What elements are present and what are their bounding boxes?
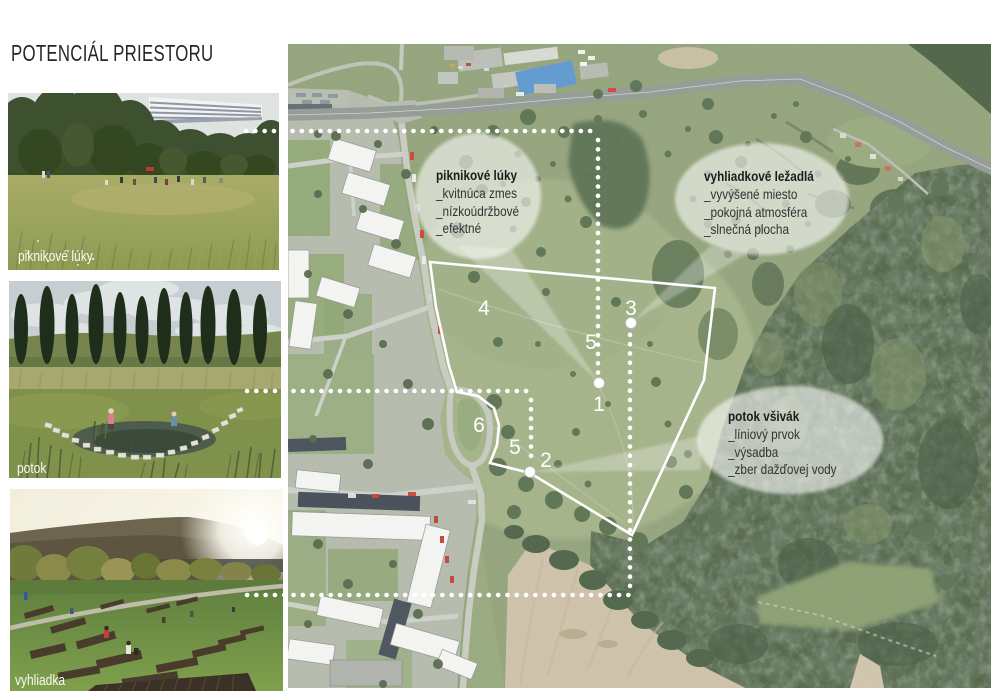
svg-text:4: 4 <box>478 297 490 320</box>
svg-text:5: 5 <box>509 436 521 459</box>
svg-text:6: 6 <box>473 414 485 437</box>
svg-text:3: 3 <box>625 297 637 320</box>
svg-text:2: 2 <box>540 449 552 472</box>
svg-text:1: 1 <box>593 393 605 416</box>
svg-text:5: 5 <box>585 331 597 354</box>
